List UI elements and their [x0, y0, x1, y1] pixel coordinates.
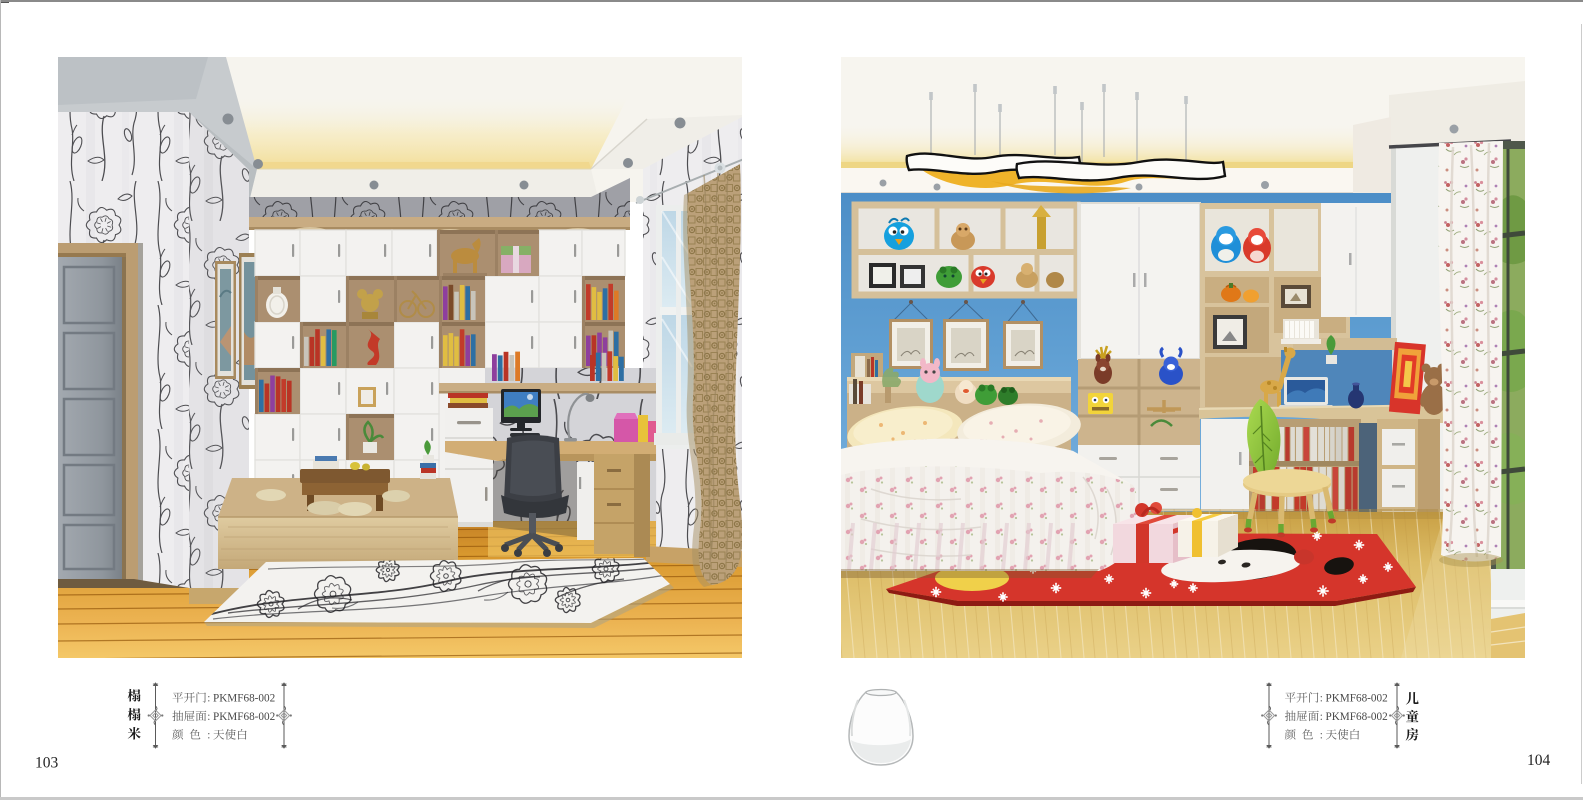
svg-text::: :: [207, 693, 210, 705]
svg-text:PKMF68-002: PKMF68-002: [1326, 693, 1388, 705]
svg-text::: :: [207, 730, 210, 742]
svg-text:PKMF68-002: PKMF68-002: [213, 711, 275, 723]
svg-text::: :: [1320, 730, 1323, 742]
svg-text:PKMF68-002: PKMF68-002: [1326, 711, 1388, 723]
svg-text:103: 103: [35, 755, 59, 772]
svg-text:104: 104: [1527, 752, 1551, 769]
svg-text::: :: [1320, 693, 1323, 705]
svg-text:PKMF68-002: PKMF68-002: [213, 693, 275, 705]
svg-text::: :: [207, 711, 210, 723]
svg-text::: :: [1320, 711, 1323, 723]
